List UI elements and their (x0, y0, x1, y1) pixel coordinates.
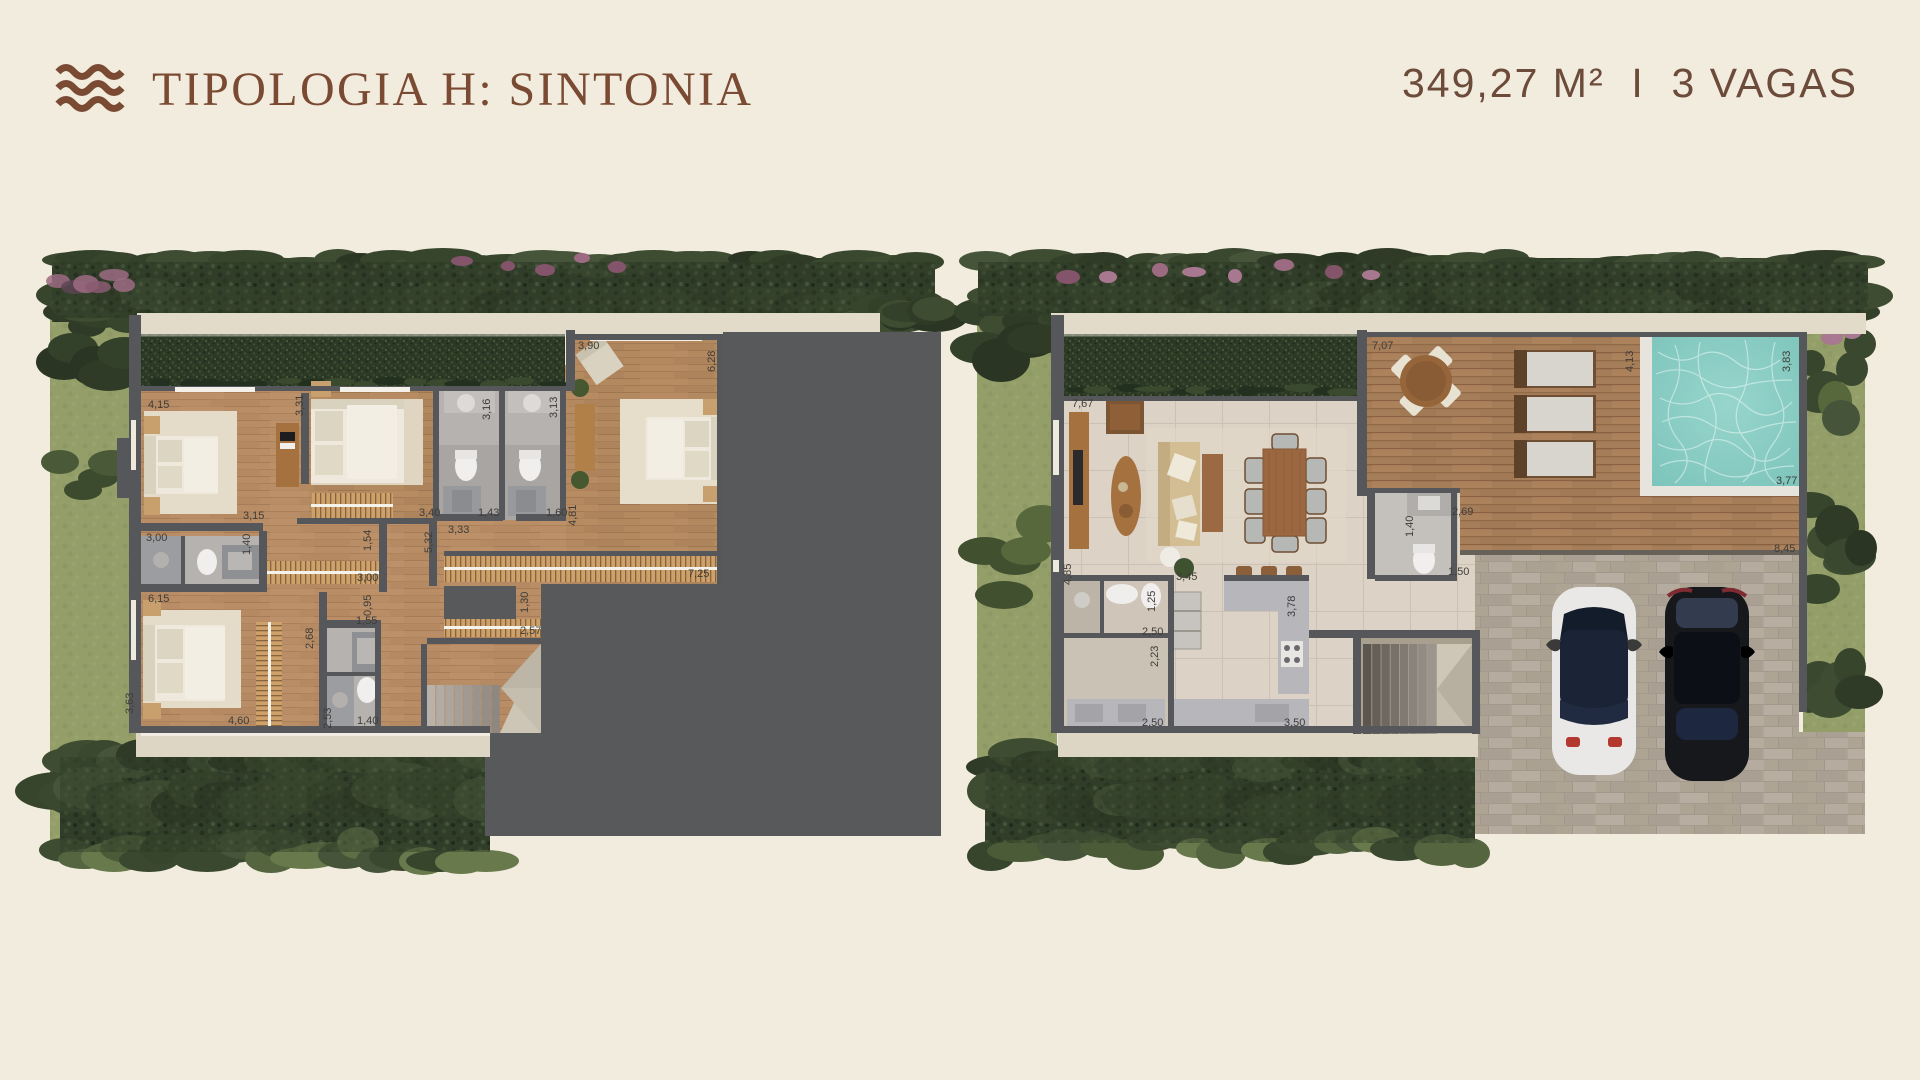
svg-text:4,15: 4,15 (148, 399, 169, 411)
svg-text:1,55: 1,55 (356, 615, 377, 627)
svg-text:3,16: 3,16 (481, 399, 493, 420)
svg-text:1,60: 1,60 (546, 507, 567, 519)
svg-text:4,85: 4,85 (1062, 564, 1074, 585)
svg-text:3,40: 3,40 (419, 507, 440, 519)
svg-text:2,50: 2,50 (1142, 717, 1163, 729)
svg-text:3,13: 3,13 (548, 397, 560, 418)
svg-text:2,68: 2,68 (304, 628, 316, 649)
svg-text:3,50: 3,50 (1284, 717, 1305, 729)
svg-text:2,23: 2,23 (1149, 646, 1161, 667)
svg-text:3,31: 3,31 (294, 395, 306, 416)
svg-text:2,53: 2,53 (322, 708, 334, 729)
svg-text:6,28: 6,28 (706, 351, 718, 372)
svg-text:3,00: 3,00 (146, 532, 167, 544)
svg-text:0,95: 0,95 (362, 595, 374, 616)
svg-text:7,07: 7,07 (1372, 340, 1393, 352)
svg-text:6,15: 6,15 (148, 593, 169, 605)
svg-text:3,90: 3,90 (578, 340, 599, 352)
svg-text:1,40: 1,40 (1404, 516, 1416, 537)
svg-text:3,83: 3,83 (1781, 351, 1793, 372)
svg-text:4,13: 4,13 (1624, 351, 1636, 372)
svg-text:3,33: 3,33 (448, 524, 469, 536)
svg-text:3,45: 3,45 (1176, 571, 1197, 583)
svg-text:1,40: 1,40 (241, 534, 253, 555)
svg-text:7,67: 7,67 (1072, 398, 1093, 410)
svg-text:1,54: 1,54 (362, 530, 374, 551)
svg-text:1,30: 1,30 (519, 592, 531, 613)
svg-text:5,32: 5,32 (423, 532, 435, 553)
svg-text:3,78: 3,78 (1286, 596, 1298, 617)
svg-text:3,63: 3,63 (124, 693, 136, 714)
svg-text:4,81: 4,81 (567, 505, 579, 526)
svg-text:1,43: 1,43 (478, 507, 499, 519)
svg-text:3,77: 3,77 (1776, 475, 1797, 487)
svg-text:3,15: 3,15 (243, 510, 264, 522)
svg-text:1,40: 1,40 (357, 715, 378, 727)
svg-text:1,50: 1,50 (1448, 566, 1469, 578)
svg-text:4,60: 4,60 (228, 715, 249, 727)
svg-text:1,25: 1,25 (1146, 591, 1158, 612)
svg-text:2,57: 2,57 (520, 625, 541, 637)
svg-text:7,25: 7,25 (688, 568, 709, 580)
svg-text:3,00: 3,00 (357, 572, 378, 584)
svg-text:2,69: 2,69 (1452, 506, 1473, 518)
svg-text:2,50: 2,50 (1142, 626, 1163, 638)
svg-text:8,45: 8,45 (1774, 543, 1795, 555)
